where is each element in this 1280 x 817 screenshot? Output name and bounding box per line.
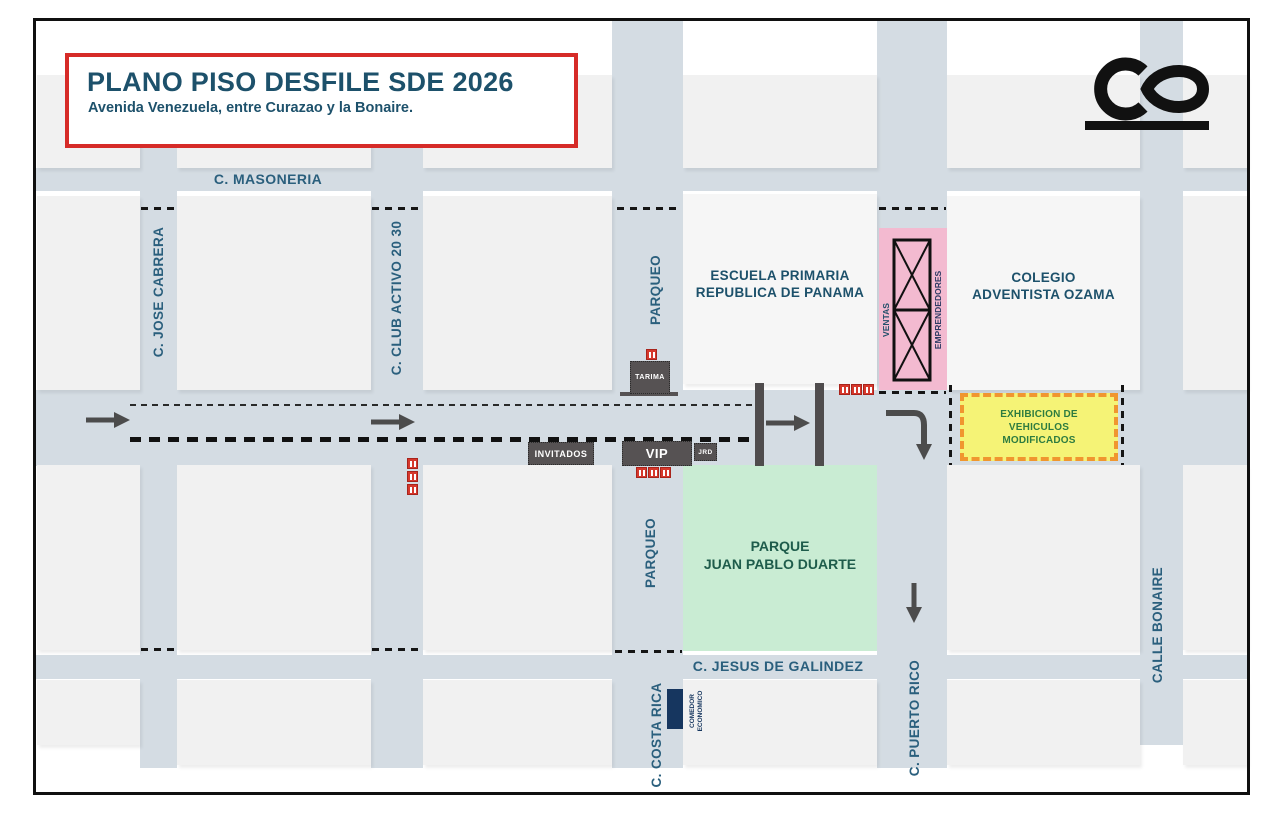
street-label-parqueo-south: PARQUEO	[640, 453, 660, 653]
street-label-parqueo-north: PARQUEO	[645, 190, 665, 390]
city-block	[1183, 196, 1247, 390]
jrd-box: JRD	[694, 443, 717, 461]
ventas-label: VENTAS	[879, 260, 893, 380]
city-block	[947, 465, 1140, 650]
colegio-label: COLEGIO ADVENTISTA OZAMA	[947, 270, 1140, 304]
street-label-costa-rica: C. COSTA RICA	[646, 635, 666, 817]
city-block	[1183, 465, 1247, 650]
vip-box: VIP	[622, 441, 692, 466]
street-jose-cabrera-band	[140, 75, 177, 768]
city-block	[37, 196, 140, 390]
street-label-puerto-rico: C. PUERTO RICO	[904, 618, 924, 817]
tarima-label: TARIMA	[635, 374, 665, 381]
city-block	[177, 196, 371, 390]
street-label-jose-cabrera: C. JOSE CABRERA	[148, 192, 168, 392]
restroom-icon	[851, 384, 862, 395]
restroom-icons-row	[636, 467, 671, 478]
street-label-galindez: C. JESUS DE GALINDEZ	[688, 656, 868, 676]
city-block	[177, 465, 371, 650]
restroom-icon	[863, 384, 874, 395]
city-block	[947, 680, 1140, 765]
barrier-bar	[815, 383, 824, 466]
exhibit-boundary-dash	[1121, 385, 1124, 465]
route-arrow-right	[371, 413, 415, 436]
comedor-economico-marker	[667, 689, 683, 729]
restroom-icon	[660, 467, 671, 478]
title-box: PLANO PISO DESFILE SDE 2026 Avenida Vene…	[65, 53, 578, 148]
city-block	[423, 680, 612, 765]
comedor-block	[683, 680, 877, 765]
emprendedores-label: EMPRENDEDORES	[931, 250, 945, 370]
exhibicion-line: MODIFICADOS	[1000, 434, 1078, 447]
invitados-label: INVITADOS	[535, 449, 588, 459]
park-label: PARQUE JUAN PABLO DUARTE	[683, 538, 877, 573]
restroom-icons-row	[839, 384, 874, 395]
street-label-club-activo: C. CLUB ACTIVO 20 30	[386, 198, 406, 398]
vip-label: VIP	[646, 446, 668, 461]
jrd-label: JRD	[698, 449, 713, 456]
street-label-bonaire: CALLE BONAIRE	[1147, 525, 1167, 725]
comedor-economico-label: COMEDOR ECONOMICO	[687, 656, 707, 766]
city-block	[37, 680, 140, 745]
restroom-icon	[646, 349, 657, 360]
exhibicion-line: EXHIBICION DE	[1000, 408, 1078, 421]
route-arrow-turn-down	[884, 403, 934, 466]
restroom-icon	[407, 484, 418, 495]
restroom-icon	[839, 384, 850, 395]
parade-route-line-upper	[130, 404, 757, 406]
map-subtitle: Avenida Venezuela, entre Curazao y la Bo…	[88, 100, 574, 116]
city-block	[423, 465, 612, 650]
street-label-masoneria: C. MASONERIA	[193, 169, 343, 189]
city-block	[683, 75, 877, 168]
restroom-icon	[636, 467, 647, 478]
closure-dash	[879, 391, 946, 394]
parade-floor-plan-map: PARQUE JUAN PABLO DUARTE TARIMA INVITADO…	[0, 0, 1280, 817]
barrier-bar	[755, 383, 764, 466]
closure-dash	[372, 648, 423, 651]
invitados-box: INVITADOS	[528, 442, 594, 465]
escuela-label: ESCUELA PRIMARIA REPUBLICA DE PANAMA	[683, 268, 877, 302]
restroom-icon	[648, 467, 659, 478]
city-block	[423, 196, 612, 390]
city-block	[177, 680, 371, 765]
route-arrow-right	[766, 414, 810, 437]
exhibicion-vehiculos-zone: EXHIBICION DE VEHICULOS MODIFICADOS	[960, 393, 1118, 461]
closure-dash	[141, 648, 176, 651]
co-infinity-logo-icon	[1083, 48, 1211, 137]
route-arrow-down	[903, 583, 925, 630]
city-block	[37, 465, 140, 650]
exhibicion-line: VEHICULOS	[1000, 421, 1078, 434]
tarima-stage: TARIMA	[630, 361, 670, 394]
restroom-icon	[407, 471, 418, 482]
map-title: PLANO PISO DESFILE SDE 2026	[87, 67, 574, 98]
city-block	[1183, 680, 1247, 765]
route-arrow-right	[86, 411, 130, 434]
restroom-icons-column	[407, 458, 418, 495]
restroom-icon	[407, 458, 418, 469]
exhibit-boundary-dash	[949, 385, 952, 465]
closure-dash	[879, 207, 946, 210]
